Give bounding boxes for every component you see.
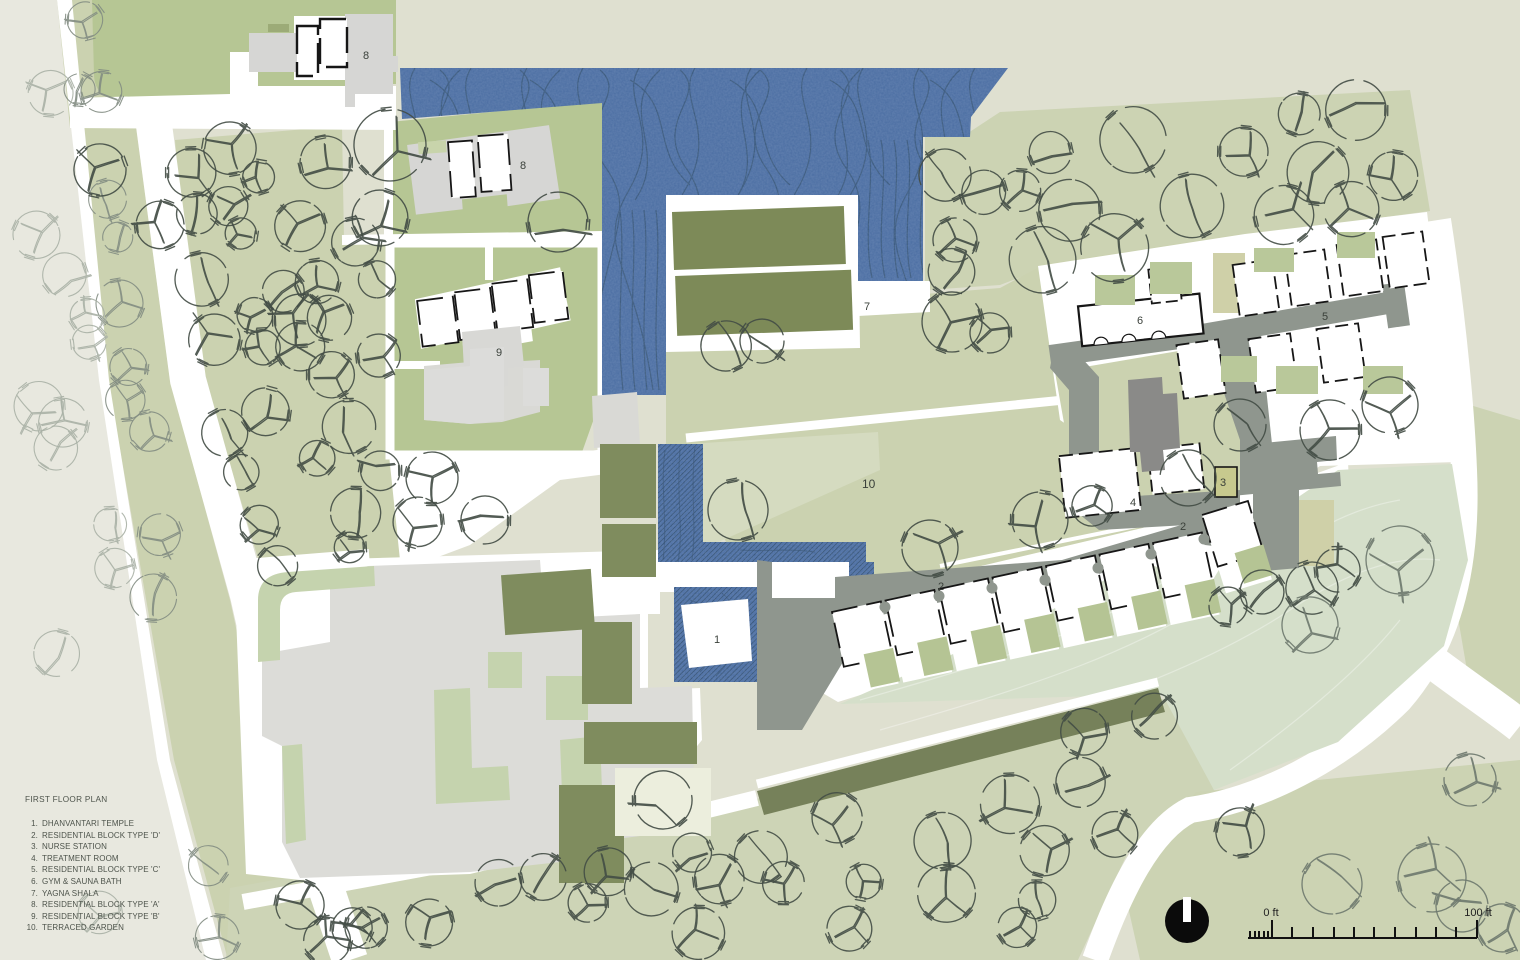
- svg-text:8: 8: [520, 160, 526, 172]
- svg-text:7.: 7.: [31, 889, 38, 898]
- svg-text:7: 7: [864, 301, 870, 313]
- svg-text:6: 6: [1137, 315, 1143, 327]
- svg-text:2: 2: [938, 581, 944, 593]
- svg-text:10: 10: [862, 477, 876, 491]
- svg-text:2.: 2.: [31, 831, 38, 840]
- svg-text:TERRACED GARDEN: TERRACED GARDEN: [42, 923, 124, 932]
- svg-text:4.: 4.: [31, 854, 38, 863]
- svg-text:TREATMENT ROOM: TREATMENT ROOM: [42, 854, 119, 863]
- svg-text:5: 5: [1322, 311, 1328, 323]
- svg-text:DHANVANTARI TEMPLE: DHANVANTARI TEMPLE: [42, 819, 134, 828]
- svg-text:3: 3: [1220, 477, 1226, 489]
- svg-text:5.: 5.: [31, 865, 38, 874]
- svg-text:9.: 9.: [31, 912, 38, 921]
- svg-text:RESIDENTIAL BLOCK TYPE 'D': RESIDENTIAL BLOCK TYPE 'D': [42, 831, 161, 840]
- svg-text:8.: 8.: [31, 900, 38, 909]
- svg-text:3.: 3.: [31, 842, 38, 851]
- svg-text:RESIDENTIAL BLOCK TYPE 'C': RESIDENTIAL BLOCK TYPE 'C': [42, 865, 161, 874]
- svg-text:4: 4: [1130, 497, 1136, 509]
- svg-text:0 ft: 0 ft: [1263, 907, 1278, 919]
- svg-text:NURSE STATION: NURSE STATION: [42, 842, 107, 851]
- svg-text:FIRST FLOOR PLAN: FIRST FLOOR PLAN: [25, 795, 107, 804]
- svg-text:8: 8: [363, 50, 369, 62]
- svg-text:6.: 6.: [31, 877, 38, 886]
- svg-text:100 ft: 100 ft: [1464, 907, 1492, 919]
- svg-text:9: 9: [496, 347, 502, 359]
- svg-text:GYM & SAUNA BATH: GYM & SAUNA BATH: [42, 877, 122, 886]
- svg-text:2: 2: [1180, 521, 1186, 533]
- svg-text:1.: 1.: [31, 819, 38, 828]
- svg-text:RESIDENTIAL BLOCK TYPE 'B': RESIDENTIAL BLOCK TYPE 'B': [42, 912, 160, 921]
- svg-text:YAGNA SHALA: YAGNA SHALA: [42, 889, 99, 898]
- svg-text:1: 1: [714, 634, 720, 646]
- svg-text:10.: 10.: [27, 923, 38, 932]
- svg-text:RESIDENTIAL BLOCK TYPE 'A': RESIDENTIAL BLOCK TYPE 'A': [42, 900, 160, 909]
